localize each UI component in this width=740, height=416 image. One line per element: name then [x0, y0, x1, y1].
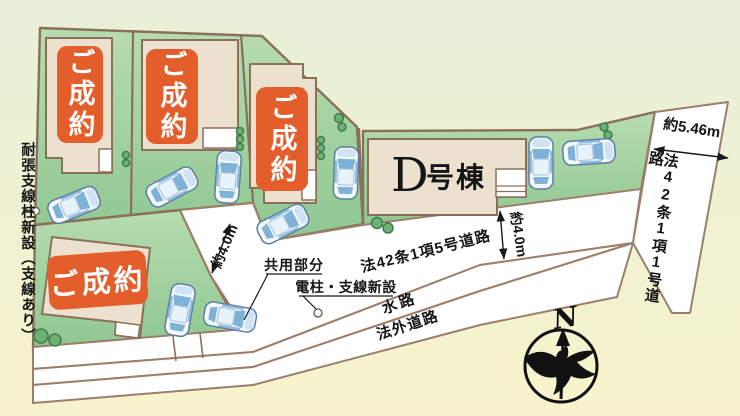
sold-badge-lot3: ご成約: [256, 87, 308, 191]
building-d-suffix: 号棟: [426, 162, 486, 193]
bush: [318, 153, 325, 160]
pole-new-label: 電柱・支線新設: [295, 279, 397, 295]
sold-badge-lot2: ご成約: [146, 49, 198, 144]
building-lot5-porch: [115, 322, 140, 338]
bush: [335, 114, 344, 123]
tree: [383, 223, 393, 233]
bush: [600, 123, 608, 131]
car: [529, 137, 553, 189]
bush: [604, 131, 612, 139]
bird-icon: [524, 344, 596, 395]
tree: [372, 218, 383, 229]
car: [333, 147, 359, 200]
bush: [237, 136, 244, 143]
shared-area-label: 共用部分: [264, 257, 324, 273]
compass-north-label: N: [550, 301, 582, 336]
tension-pole-note: 耐張支線柱新設（支線あり）: [10, 142, 34, 357]
bush: [237, 128, 244, 135]
tree: [49, 334, 61, 346]
sold-badge-lot1: ご成約: [57, 46, 103, 143]
building-lot2-porch: [203, 128, 237, 148]
compass: N: [524, 301, 597, 402]
bush: [123, 152, 130, 159]
bush: [338, 123, 346, 131]
bush: [318, 137, 325, 144]
car: [562, 138, 616, 166]
car: [214, 150, 242, 204]
bush: [237, 144, 244, 151]
building-lot1-porch: [99, 149, 112, 172]
bush: [123, 160, 130, 167]
utility-pole: [314, 309, 322, 317]
building-d-porch: [496, 169, 526, 197]
bush: [318, 145, 325, 152]
tree: [34, 329, 48, 343]
site-plan: N 法42条1項5号道路 水路 法外道路 共用部分 電柱・支線新設 約5.46m…: [0, 0, 740, 416]
site-plan-drawing: N 法42条1項5号道路 水路 法外道路 共用部分 電柱・支線新設 約5.46m…: [0, 0, 740, 416]
building-d-letter: D: [391, 148, 429, 203]
sold-badge-lot5: ご成約: [46, 250, 149, 311]
